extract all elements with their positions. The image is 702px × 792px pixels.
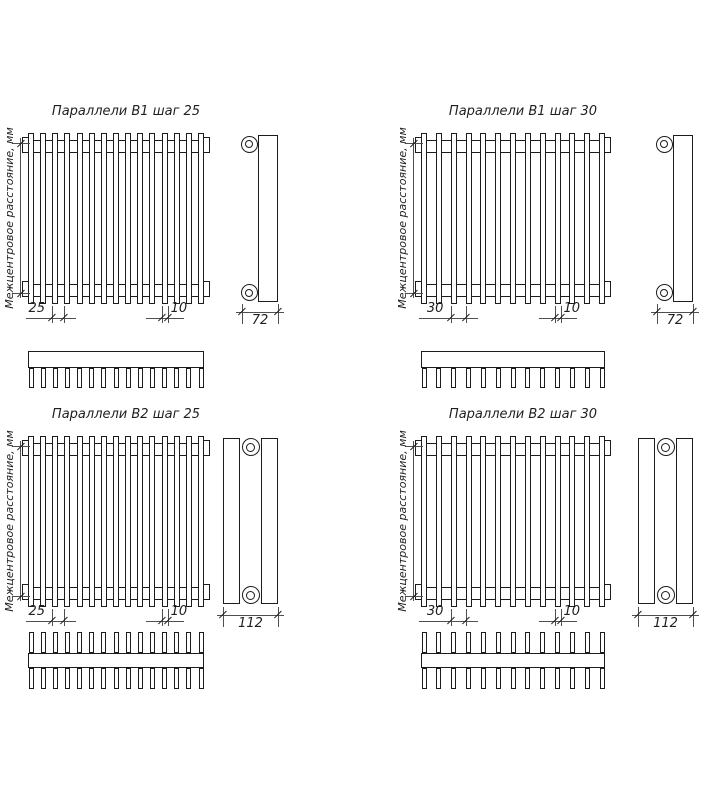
axis-label: Межцентровое расстояние, мм	[397, 430, 409, 611]
front-view	[421, 436, 605, 607]
diagram-title: Параллели В2 шаг 25	[18, 408, 234, 422]
diagram-v1-step-30: Параллели В1 шаг 30Межцентровое расстоян…	[393, 0, 702, 303]
tube-end-back	[525, 668, 530, 689]
tube	[149, 436, 155, 607]
connector-circle-inner	[246, 443, 255, 452]
tube	[162, 133, 168, 304]
tube-end-back	[481, 668, 486, 689]
tube-end-back	[89, 668, 94, 689]
front-view	[28, 133, 204, 304]
tube-end-front	[126, 632, 131, 653]
tube	[174, 133, 180, 304]
tube-end-back	[540, 668, 545, 689]
tube	[569, 133, 575, 304]
tube	[555, 133, 561, 304]
diagram-v2-step-25: Параллели В2 шаг 25Межцентровое расстоян…	[0, 303, 393, 606]
tube-end-back	[126, 668, 131, 689]
tube-end-front	[65, 632, 70, 653]
extension-line	[278, 607, 279, 627]
tube	[495, 436, 501, 607]
axis-label: Межцентровое расстояние, мм	[397, 127, 409, 308]
tube	[77, 133, 83, 304]
connector-circle-inner	[660, 289, 668, 297]
tube-end-back	[174, 668, 179, 689]
side-view-back-row	[261, 438, 278, 604]
tube-end-front	[481, 632, 486, 653]
tube	[436, 133, 442, 304]
tube-end-front	[174, 632, 179, 653]
tube-end-back	[600, 668, 605, 689]
side-view-body	[258, 135, 278, 302]
dim-line-vertical	[413, 441, 414, 601]
tube	[186, 436, 192, 607]
connector-circle-inner	[245, 289, 253, 297]
dim-line-vertical	[20, 138, 21, 298]
tube	[113, 133, 119, 304]
tube-end-back	[496, 668, 501, 689]
tube	[451, 133, 457, 304]
tube-end-front	[525, 632, 530, 653]
tube-end-back	[114, 668, 119, 689]
tube	[125, 436, 131, 607]
tube-end-back	[436, 668, 441, 689]
side-view-front-row	[223, 438, 240, 604]
diagram-v1-step-25: Параллели В1 шаг 25Межцентровое расстоян…	[0, 0, 393, 303]
top-view	[421, 632, 605, 689]
top-view	[28, 632, 204, 689]
tube-end-front	[162, 632, 167, 653]
dim-step-value: 25	[25, 605, 48, 619]
tube	[466, 436, 472, 607]
tube	[569, 436, 575, 607]
diagram-title: Параллели В2 шаг 30	[411, 408, 635, 422]
tube-end-back	[466, 668, 471, 689]
tube-end-front	[186, 632, 191, 653]
tube	[525, 133, 531, 304]
tube	[540, 436, 546, 607]
tube	[174, 436, 180, 607]
tube	[198, 436, 204, 607]
tube	[52, 436, 58, 607]
tube-end-front	[451, 632, 456, 653]
tube-end-back	[162, 668, 167, 689]
axis-label: Межцентровое расстояние, мм	[4, 127, 16, 308]
side-view-back-row	[676, 438, 693, 604]
tube	[52, 133, 58, 304]
tube	[89, 133, 95, 304]
tube	[451, 436, 457, 607]
tube-end-front	[585, 632, 590, 653]
connector-circle-inner	[661, 443, 670, 452]
side-view-front-row	[638, 438, 655, 604]
tube	[162, 436, 168, 607]
diagram-title: Параллели В1 шаг 25	[18, 105, 234, 119]
tube-end-front	[114, 632, 119, 653]
tube-end-front	[540, 632, 545, 653]
tube	[40, 436, 46, 607]
diagram-title: Параллели В1 шаг 30	[411, 105, 635, 119]
tube-end-back	[65, 668, 70, 689]
radiator-drawing-canvas: Параллели В1 шаг 25Межцентровое расстоян…	[0, 0, 702, 792]
tube	[186, 133, 192, 304]
tube-end-back	[422, 668, 427, 689]
tube	[510, 436, 516, 607]
tube-end-back	[186, 668, 191, 689]
tube-end-back	[41, 668, 46, 689]
dim-line-vertical	[20, 441, 21, 601]
tube	[480, 133, 486, 304]
dim-tube-width-value: 10	[171, 605, 193, 619]
tube-end-front	[101, 632, 106, 653]
tube	[137, 436, 143, 607]
tube	[466, 133, 472, 304]
tube	[495, 133, 501, 304]
tube-end-front	[436, 632, 441, 653]
connector-circle-inner	[660, 140, 668, 148]
dim-depth-value: 112	[638, 617, 693, 631]
tube	[64, 133, 70, 304]
side-view-body	[673, 135, 693, 302]
tube	[113, 436, 119, 607]
tube	[480, 436, 486, 607]
tube	[101, 133, 107, 304]
diagram-v2-step-30: Параллели В2 шаг 30Межцентровое расстоян…	[393, 303, 702, 606]
tube-end-back	[29, 668, 34, 689]
tube	[125, 133, 131, 304]
tube	[198, 133, 204, 304]
tube-end-front	[600, 632, 605, 653]
tube	[599, 436, 605, 607]
connector-circle-inner	[245, 140, 253, 148]
tube	[599, 133, 605, 304]
dim-step-value: 30	[424, 605, 447, 619]
tube	[436, 436, 442, 607]
tube	[540, 133, 546, 304]
tube	[28, 436, 34, 607]
dim-line-vertical	[413, 138, 414, 298]
tube-end-front	[89, 632, 94, 653]
tube-end-front	[199, 632, 204, 653]
tube-end-back	[138, 668, 143, 689]
tube	[584, 436, 590, 607]
tube-end-front	[466, 632, 471, 653]
tube-end-front	[41, 632, 46, 653]
tube-end-front	[496, 632, 501, 653]
axis-label: Межцентровое расстояние, мм	[4, 430, 16, 611]
tube-end-back	[451, 668, 456, 689]
tube-end-front	[77, 632, 82, 653]
tube-end-back	[101, 668, 106, 689]
tube-end-back	[150, 668, 155, 689]
tube-end-back	[585, 668, 590, 689]
tube	[149, 133, 155, 304]
tube-end-front	[570, 632, 575, 653]
connector-circle-inner	[661, 591, 670, 600]
tube	[89, 436, 95, 607]
tube-end-back	[511, 668, 516, 689]
extension-line	[693, 607, 694, 627]
front-view	[421, 133, 605, 304]
tube-end-front	[53, 632, 58, 653]
tube	[421, 133, 427, 304]
front-view	[28, 436, 204, 607]
tube-end-front	[422, 632, 427, 653]
tube	[28, 133, 34, 304]
connector-circle-inner	[246, 591, 255, 600]
tube	[421, 436, 427, 607]
dim-depth-value: 112	[223, 617, 278, 631]
tube	[525, 436, 531, 607]
tube	[137, 133, 143, 304]
tube	[40, 133, 46, 304]
tube-end-front	[555, 632, 560, 653]
tube	[64, 436, 70, 607]
tube	[584, 133, 590, 304]
tube	[555, 436, 561, 607]
tube-end-front	[150, 632, 155, 653]
tube	[101, 436, 107, 607]
tube-end-back	[77, 668, 82, 689]
top-view-collector	[28, 653, 204, 668]
tube	[77, 436, 83, 607]
dim-tube-width-value: 10	[564, 605, 586, 619]
tube-end-back	[53, 668, 58, 689]
tube-end-back	[570, 668, 575, 689]
tube	[510, 133, 516, 304]
tube-end-front	[29, 632, 34, 653]
tube-end-front	[511, 632, 516, 653]
tube-end-front	[138, 632, 143, 653]
tube-end-back	[555, 668, 560, 689]
tube-end-back	[199, 668, 204, 689]
top-view-collector	[421, 653, 605, 668]
